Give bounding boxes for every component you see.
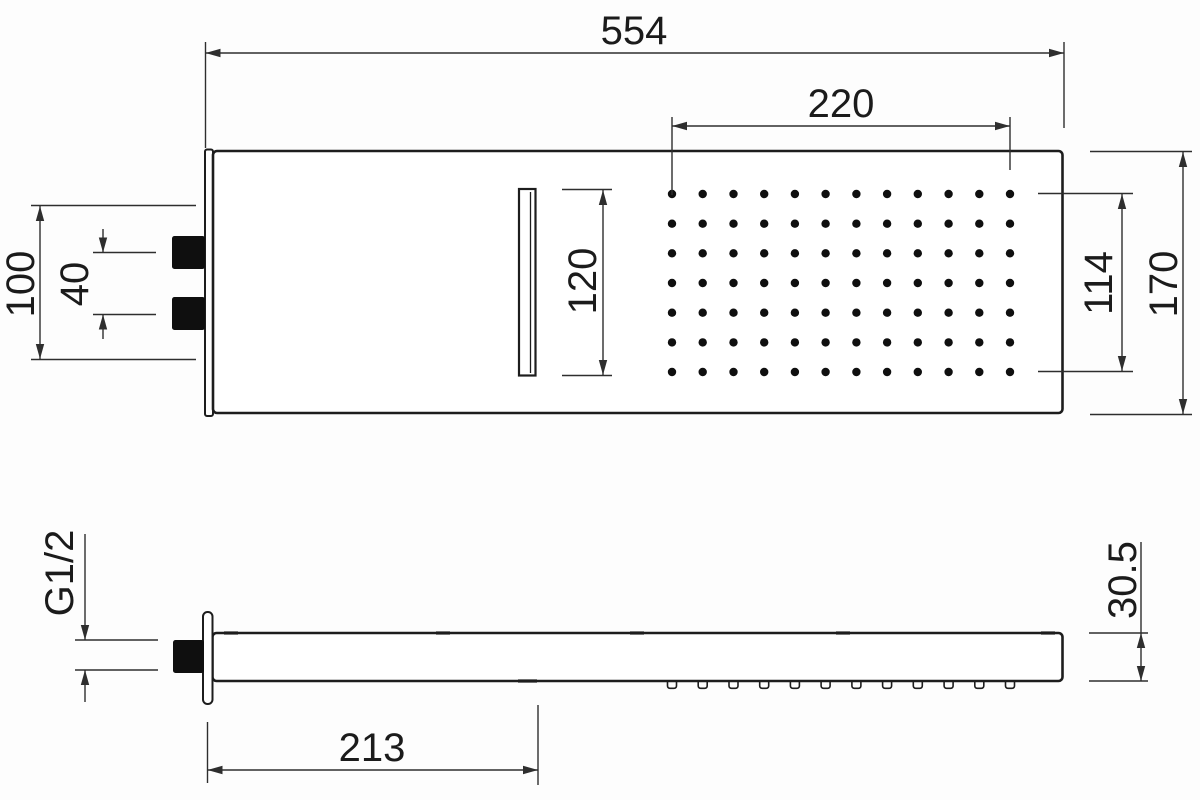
- spray-nozzle-dot: [1006, 338, 1014, 346]
- spray-nozzle-dot: [944, 309, 952, 317]
- spray-nozzle-dot: [729, 249, 737, 257]
- dim-inlet-spacing: 40: [53, 229, 156, 339]
- dim-label-inlet-thread: G1/2: [38, 530, 82, 617]
- dim-inlet-thread: G1/2: [38, 530, 158, 702]
- spray-nozzle-dot: [729, 368, 737, 376]
- spray-nozzle-dot: [791, 338, 799, 346]
- arrowhead-up: [81, 670, 89, 685]
- inlet-connector-side: [173, 640, 204, 673]
- spray-nozzle-dot: [699, 309, 707, 317]
- spray-nozzle-dot: [760, 220, 768, 228]
- dim-label-inlet-span: 100: [0, 251, 43, 318]
- dim-label-spray-field-width: 220: [808, 82, 875, 126]
- spray-nozzle-dot: [760, 338, 768, 346]
- arrowhead-down: [36, 344, 44, 359]
- spray-nozzle-dot: [729, 309, 737, 317]
- inlet-connector-bottom: [172, 297, 205, 330]
- plan-view: [172, 150, 1063, 417]
- arrowhead-down: [1179, 399, 1187, 414]
- spray-nozzle-dot: [729, 279, 737, 287]
- arrowhead-up: [36, 206, 44, 221]
- spray-nozzle-dot: [668, 249, 676, 257]
- spray-nozzle-dot: [883, 309, 891, 317]
- spray-nozzle-dot: [1006, 220, 1014, 228]
- spray-nozzle-dot: [1006, 249, 1014, 257]
- dim-label-overall-depth: 170: [1142, 251, 1186, 318]
- wall-flange: [203, 612, 213, 704]
- waterfall-slot: [519, 189, 536, 376]
- arrowhead-left: [206, 49, 221, 57]
- spray-nozzle-dot: [699, 220, 707, 228]
- spray-nozzle-dot: [883, 368, 891, 376]
- spray-nozzle-dot: [1006, 368, 1014, 376]
- arrowhead-right: [1049, 49, 1064, 57]
- spray-nozzle-dot: [668, 368, 676, 376]
- spray-nozzle-dot: [760, 368, 768, 376]
- dim-label-thickness: 30.5: [1101, 541, 1145, 619]
- spray-nozzle-dot: [821, 220, 829, 228]
- dim-label-spray-field-height: 114: [1077, 251, 1121, 315]
- dim-inlet-span: 100: [0, 206, 196, 360]
- spray-nozzle-dot: [883, 220, 891, 228]
- spray-nozzle-dot: [852, 190, 860, 198]
- spray-nozzle-dot: [760, 279, 768, 287]
- spray-nozzle-dot: [883, 279, 891, 287]
- spray-nozzle-dot: [975, 190, 983, 198]
- spray-nozzle-dot: [668, 338, 676, 346]
- arrowhead-up: [99, 315, 107, 330]
- spray-nozzle-dot: [914, 309, 922, 317]
- dim-projection: 213: [208, 705, 539, 785]
- spray-nozzle-dot: [821, 338, 829, 346]
- spray-nozzle-dot: [668, 220, 676, 228]
- spray-nozzle-dot: [760, 190, 768, 198]
- spray-nozzle-dot: [791, 279, 799, 287]
- spray-nozzle-dot: [791, 249, 799, 257]
- spray-nozzle-dot: [699, 190, 707, 198]
- arrowhead-down: [99, 238, 107, 253]
- arrowhead-left: [672, 122, 687, 130]
- arrowhead-down: [81, 625, 89, 640]
- spray-nozzle-dot: [975, 338, 983, 346]
- spray-nozzle-dot: [852, 220, 860, 228]
- side-view: [173, 612, 1063, 704]
- spray-nozzle-dot: [944, 190, 952, 198]
- spray-nozzle-dot: [914, 190, 922, 198]
- spray-nozzle-dot: [699, 249, 707, 257]
- inlet-connector-top: [172, 236, 205, 269]
- spray-nozzle-dot: [821, 309, 829, 317]
- spray-nozzle-dot: [975, 220, 983, 228]
- spray-nozzle-dot: [729, 190, 737, 198]
- side-body-outline: [213, 633, 1063, 681]
- spray-nozzle-dot: [668, 279, 676, 287]
- spray-nozzle-dot: [883, 249, 891, 257]
- dim-thickness: 30.5: [1089, 541, 1148, 681]
- spray-nozzle-dot: [914, 338, 922, 346]
- spray-nozzle-dot: [883, 338, 891, 346]
- spray-nozzle-dot: [668, 309, 676, 317]
- spray-nozzle-dot: [944, 220, 952, 228]
- spray-nozzle-dot: [914, 368, 922, 376]
- spray-nozzle-dot: [975, 249, 983, 257]
- spray-nozzle-dot: [791, 368, 799, 376]
- spray-nozzle-dot: [852, 249, 860, 257]
- spray-nozzle-dot: [944, 338, 952, 346]
- spray-nozzle-dot: [852, 309, 860, 317]
- dim-overall-width: 554: [206, 9, 1065, 148]
- arrowhead-up: [1137, 633, 1145, 648]
- shower-head-drawing: 554 220 100 40 120: [0, 0, 1200, 800]
- spray-nozzle-dot: [975, 279, 983, 287]
- arrowhead-down: [1118, 356, 1126, 371]
- spray-nozzle-dot: [1006, 279, 1014, 287]
- technical-drawing-canvas: 554 220 100 40 120: [0, 0, 1200, 800]
- spray-nozzle-dot: [821, 279, 829, 287]
- dim-label-inlet-spacing: 40: [53, 262, 97, 307]
- dim-label-projection: 213: [339, 726, 406, 770]
- spray-nozzle-dot: [883, 190, 891, 198]
- spray-nozzle-dot: [791, 190, 799, 198]
- spray-nozzle-dot: [852, 368, 860, 376]
- spray-nozzle-dot: [852, 338, 860, 346]
- arrowhead-up: [1118, 194, 1126, 209]
- spray-nozzle-dot: [975, 309, 983, 317]
- spray-nozzle-dot: [699, 279, 707, 287]
- spray-nozzle-dot: [699, 338, 707, 346]
- arrowhead-up: [1179, 152, 1187, 167]
- spray-nozzle-dot: [975, 368, 983, 376]
- spray-nozzle-dot: [914, 249, 922, 257]
- spray-nozzle-dot: [760, 309, 768, 317]
- arrowhead-down: [1137, 666, 1145, 681]
- spray-nozzle-dot: [852, 279, 860, 287]
- arrowhead-left: [208, 766, 223, 774]
- dim-label-overall-width: 554: [601, 9, 668, 53]
- spray-nozzle-dot: [791, 220, 799, 228]
- spray-nozzle-dot: [914, 220, 922, 228]
- spray-nozzle-dot: [729, 338, 737, 346]
- spray-nozzle-dot: [821, 190, 829, 198]
- spray-nozzle-dot: [699, 368, 707, 376]
- spray-nozzle-dot: [821, 249, 829, 257]
- spray-nozzle-dot: [821, 368, 829, 376]
- spray-nozzle-dot: [914, 279, 922, 287]
- spray-nozzle-dot: [760, 249, 768, 257]
- spray-nozzle-dot: [944, 279, 952, 287]
- arrowhead-right: [523, 766, 538, 774]
- spray-nozzle-dot: [1006, 190, 1014, 198]
- spray-nozzle-dot: [1006, 309, 1014, 317]
- plan-body-outline: [213, 151, 1063, 413]
- spray-nozzle-dot: [944, 249, 952, 257]
- arrowhead-right: [995, 122, 1010, 130]
- spray-nozzle-dot: [791, 309, 799, 317]
- spray-nozzle-dot: [944, 368, 952, 376]
- dim-label-slot-length: 120: [561, 248, 605, 315]
- spray-nozzle-dot: [729, 220, 737, 228]
